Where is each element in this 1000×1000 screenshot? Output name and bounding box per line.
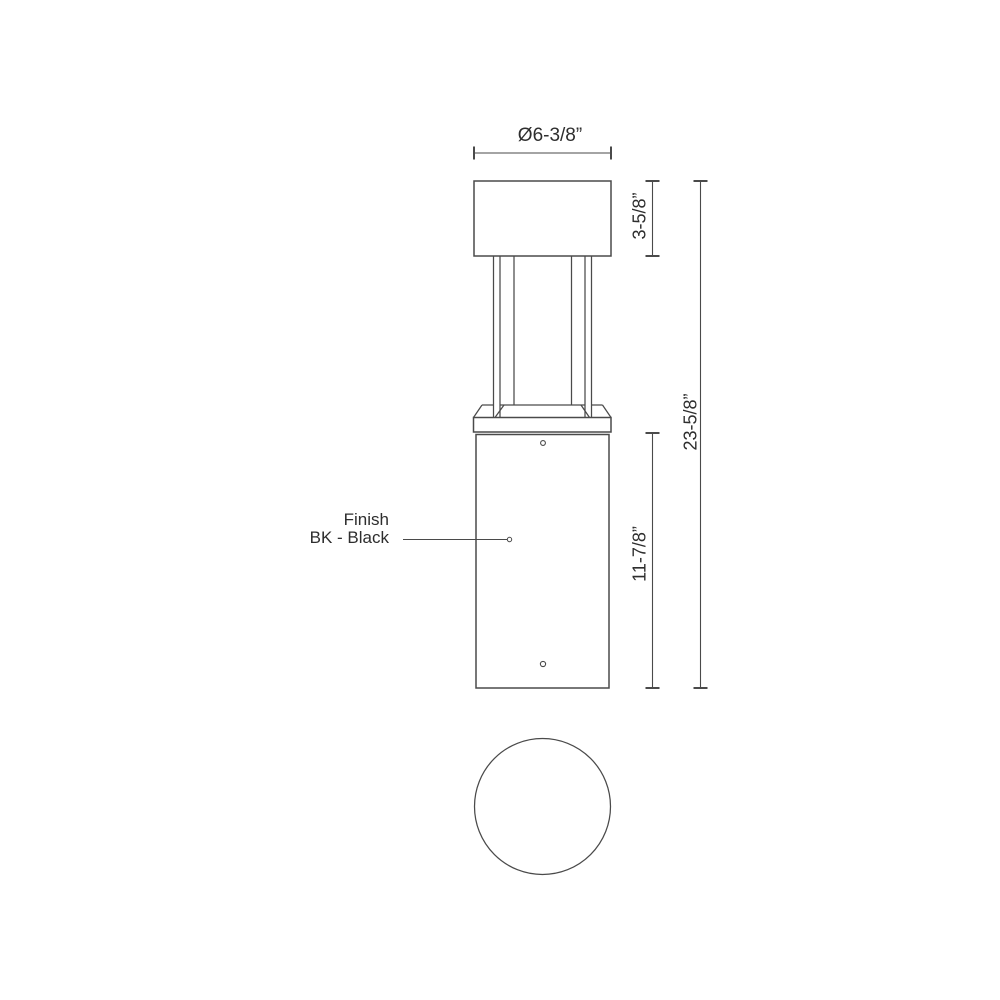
support-posts: [494, 256, 592, 418]
finish-callout: Finish BK - Black: [189, 511, 389, 547]
spec-drawing-page: Ø6-3/8” 3-5/8” 11-7/8” 23-5/8” Finish BK…: [0, 0, 1000, 1000]
finish-value: BK - Black: [189, 529, 389, 547]
inner-diffuser-edges: [514, 256, 572, 405]
drawing-linework: [0, 0, 1000, 1000]
screw-bottom: [540, 661, 545, 666]
body-height-dimension-label: 11-7/8”: [630, 526, 651, 582]
collar-outline: [474, 418, 612, 433]
finish-label: Finish: [189, 511, 389, 529]
cap-outline: [474, 181, 611, 256]
screw-top: [541, 441, 546, 446]
diameter-dimension-line: [474, 147, 611, 160]
front-elevation-view: [474, 181, 612, 688]
cap-height-dimension-label: 3-5/8”: [630, 192, 651, 239]
plan-view-circle: [475, 739, 611, 875]
diameter-dimension-label: Ø6-3/8”: [518, 125, 582, 147]
body-outline: [476, 435, 609, 689]
overall-height-dimension-label: 23-5/8”: [681, 393, 702, 450]
